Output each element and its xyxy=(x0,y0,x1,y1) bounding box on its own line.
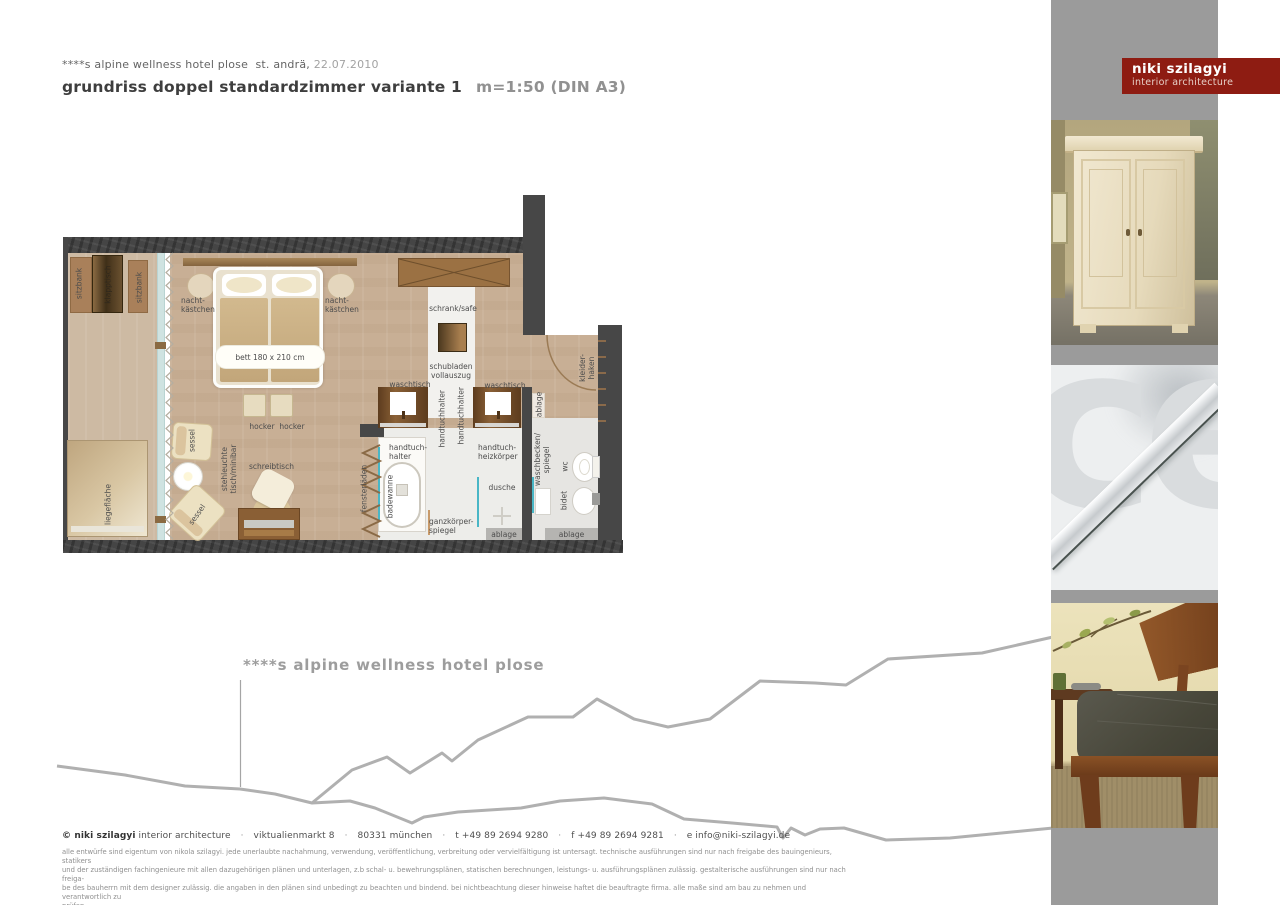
legal-line: be des bauherrn mit dem designer zulässi… xyxy=(62,884,846,902)
wardrobe-photo xyxy=(1051,120,1218,345)
label-ganzkoerperspiegel: ganzkörper- spiegel xyxy=(429,517,487,535)
label-stehleuchte: stehleuchte tisch/minibar xyxy=(220,437,238,501)
label-waschbecken-spiegel: waschbecken/ spiegel xyxy=(533,434,551,486)
chair-cushion xyxy=(1077,691,1218,763)
label-handtuchhalter: handtuchhalter xyxy=(438,392,447,448)
label-handtuchhalter-tub: handtuch- halter xyxy=(389,443,433,461)
label-nachtkaestchen: nacht- kästchen xyxy=(325,296,365,314)
label-sitzbank: sitzbank xyxy=(75,257,84,311)
sheet-title: grundriss doppel standardzimmer variante… xyxy=(62,78,626,96)
label-waschtisch: waschtisch xyxy=(480,381,530,390)
label-badewanne: badewanne xyxy=(386,469,395,525)
label-schrank-safe: schrank/safe xyxy=(425,304,481,313)
sheet-scale: m=1:50 (DIN A3) xyxy=(476,78,626,96)
label-klapptisch: klapptisch xyxy=(104,255,113,315)
project-name: ****s alpine wellness hotel plose xyxy=(62,58,248,71)
sidebar-gray-block-bottom xyxy=(1051,828,1218,905)
label-kleiderhaken: kleider- haken xyxy=(578,348,596,388)
studio-name: interior architecture xyxy=(139,831,231,841)
sidebar-divider-band xyxy=(1051,345,1218,365)
legal-line: alle entwürfe sind eigentum von nikola s… xyxy=(62,848,846,866)
logo-subtitle: interior architecture xyxy=(1132,77,1280,88)
city: 80331 münchen xyxy=(358,831,433,841)
detail-photo-ruler: ce xyxy=(1051,365,1218,590)
drawing-sheet: ****s alpine wellness hotel plose st. an… xyxy=(0,0,1280,905)
phone: t +49 89 2694 9280 xyxy=(455,831,548,841)
project-location: st. andrä, xyxy=(255,58,310,71)
chair-photo xyxy=(1051,603,1218,828)
logo-name: niki szilagyi xyxy=(1132,61,1280,77)
label-handtuchhalter: handtuchhalter xyxy=(457,389,466,445)
label-hocker: hocker hocker xyxy=(241,422,313,431)
label-schreibtisch: schreibtisch xyxy=(249,462,309,471)
legal-text: alle entwürfe sind eigentum von nikola s… xyxy=(62,848,846,905)
sheet-title-text: grundriss doppel standardzimmer variante… xyxy=(62,78,462,96)
label-handtuch-heizkoerper: handtuch- heizkörper xyxy=(478,443,538,461)
label-ablage: ablage xyxy=(535,390,544,420)
sidebar-divider-band xyxy=(1051,590,1218,603)
project-line: ****s alpine wellness hotel plose st. an… xyxy=(62,58,379,71)
label-sitzbank: sitzbank xyxy=(135,261,144,315)
label-bidet: bidet xyxy=(560,488,569,514)
label-sessel: sessel xyxy=(188,421,197,461)
chair-frame xyxy=(1071,756,1218,777)
label-wc: wc xyxy=(561,459,570,475)
legal-line: und der zuständigen fachingenieure mit a… xyxy=(62,866,846,884)
label-dusche: dusche xyxy=(485,483,519,492)
email-link[interactable]: e info@niki-szilagyi.de xyxy=(687,831,790,841)
copyright: © niki szilagyi xyxy=(62,831,136,841)
plan-linework xyxy=(63,195,623,553)
hotel-annotation: ****s alpine wellness hotel plose xyxy=(243,656,544,674)
photo-window xyxy=(1051,192,1068,244)
label-waschtisch: waschtisch xyxy=(385,380,435,389)
floor-plan: bett 180 x 210 cm ablage abla xyxy=(63,195,623,553)
label-nachtkaestchen: nacht- kästchen xyxy=(181,296,221,314)
label-fensterlaeden: fensterläden xyxy=(360,457,369,521)
image-sidebar: ce xyxy=(1051,0,1218,905)
address: viktualienmarkt 8 xyxy=(254,831,335,841)
studio-logo: niki szilagyi interior architecture xyxy=(1122,58,1280,94)
fax: f +49 89 2694 9281 xyxy=(571,831,664,841)
label-schubladen: schubladen vollauszug xyxy=(421,362,481,380)
contact-line: © niki szilagyi interior architecture · … xyxy=(62,831,790,841)
label-liegeflaeche: liegefläche xyxy=(104,472,113,538)
project-date: 22.07.2010 xyxy=(314,58,379,71)
